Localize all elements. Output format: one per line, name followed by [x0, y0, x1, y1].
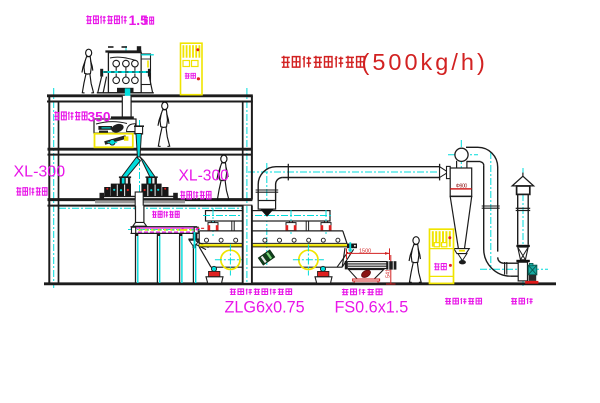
- svg-text:(500kg/h): (500kg/h): [362, 49, 488, 75]
- svg-text:1500: 1500: [359, 249, 371, 255]
- svg-text:ZLG6x0.75: ZLG6x0.75: [225, 299, 305, 317]
- svg-text:XL-300: XL-300: [14, 164, 66, 181]
- svg-text:FS0.6x1.5: FS0.6x1.5: [335, 299, 409, 317]
- svg-text:350: 350: [88, 110, 111, 125]
- svg-text:XL-300: XL-300: [179, 168, 230, 185]
- svg-text:541: 541: [385, 269, 391, 278]
